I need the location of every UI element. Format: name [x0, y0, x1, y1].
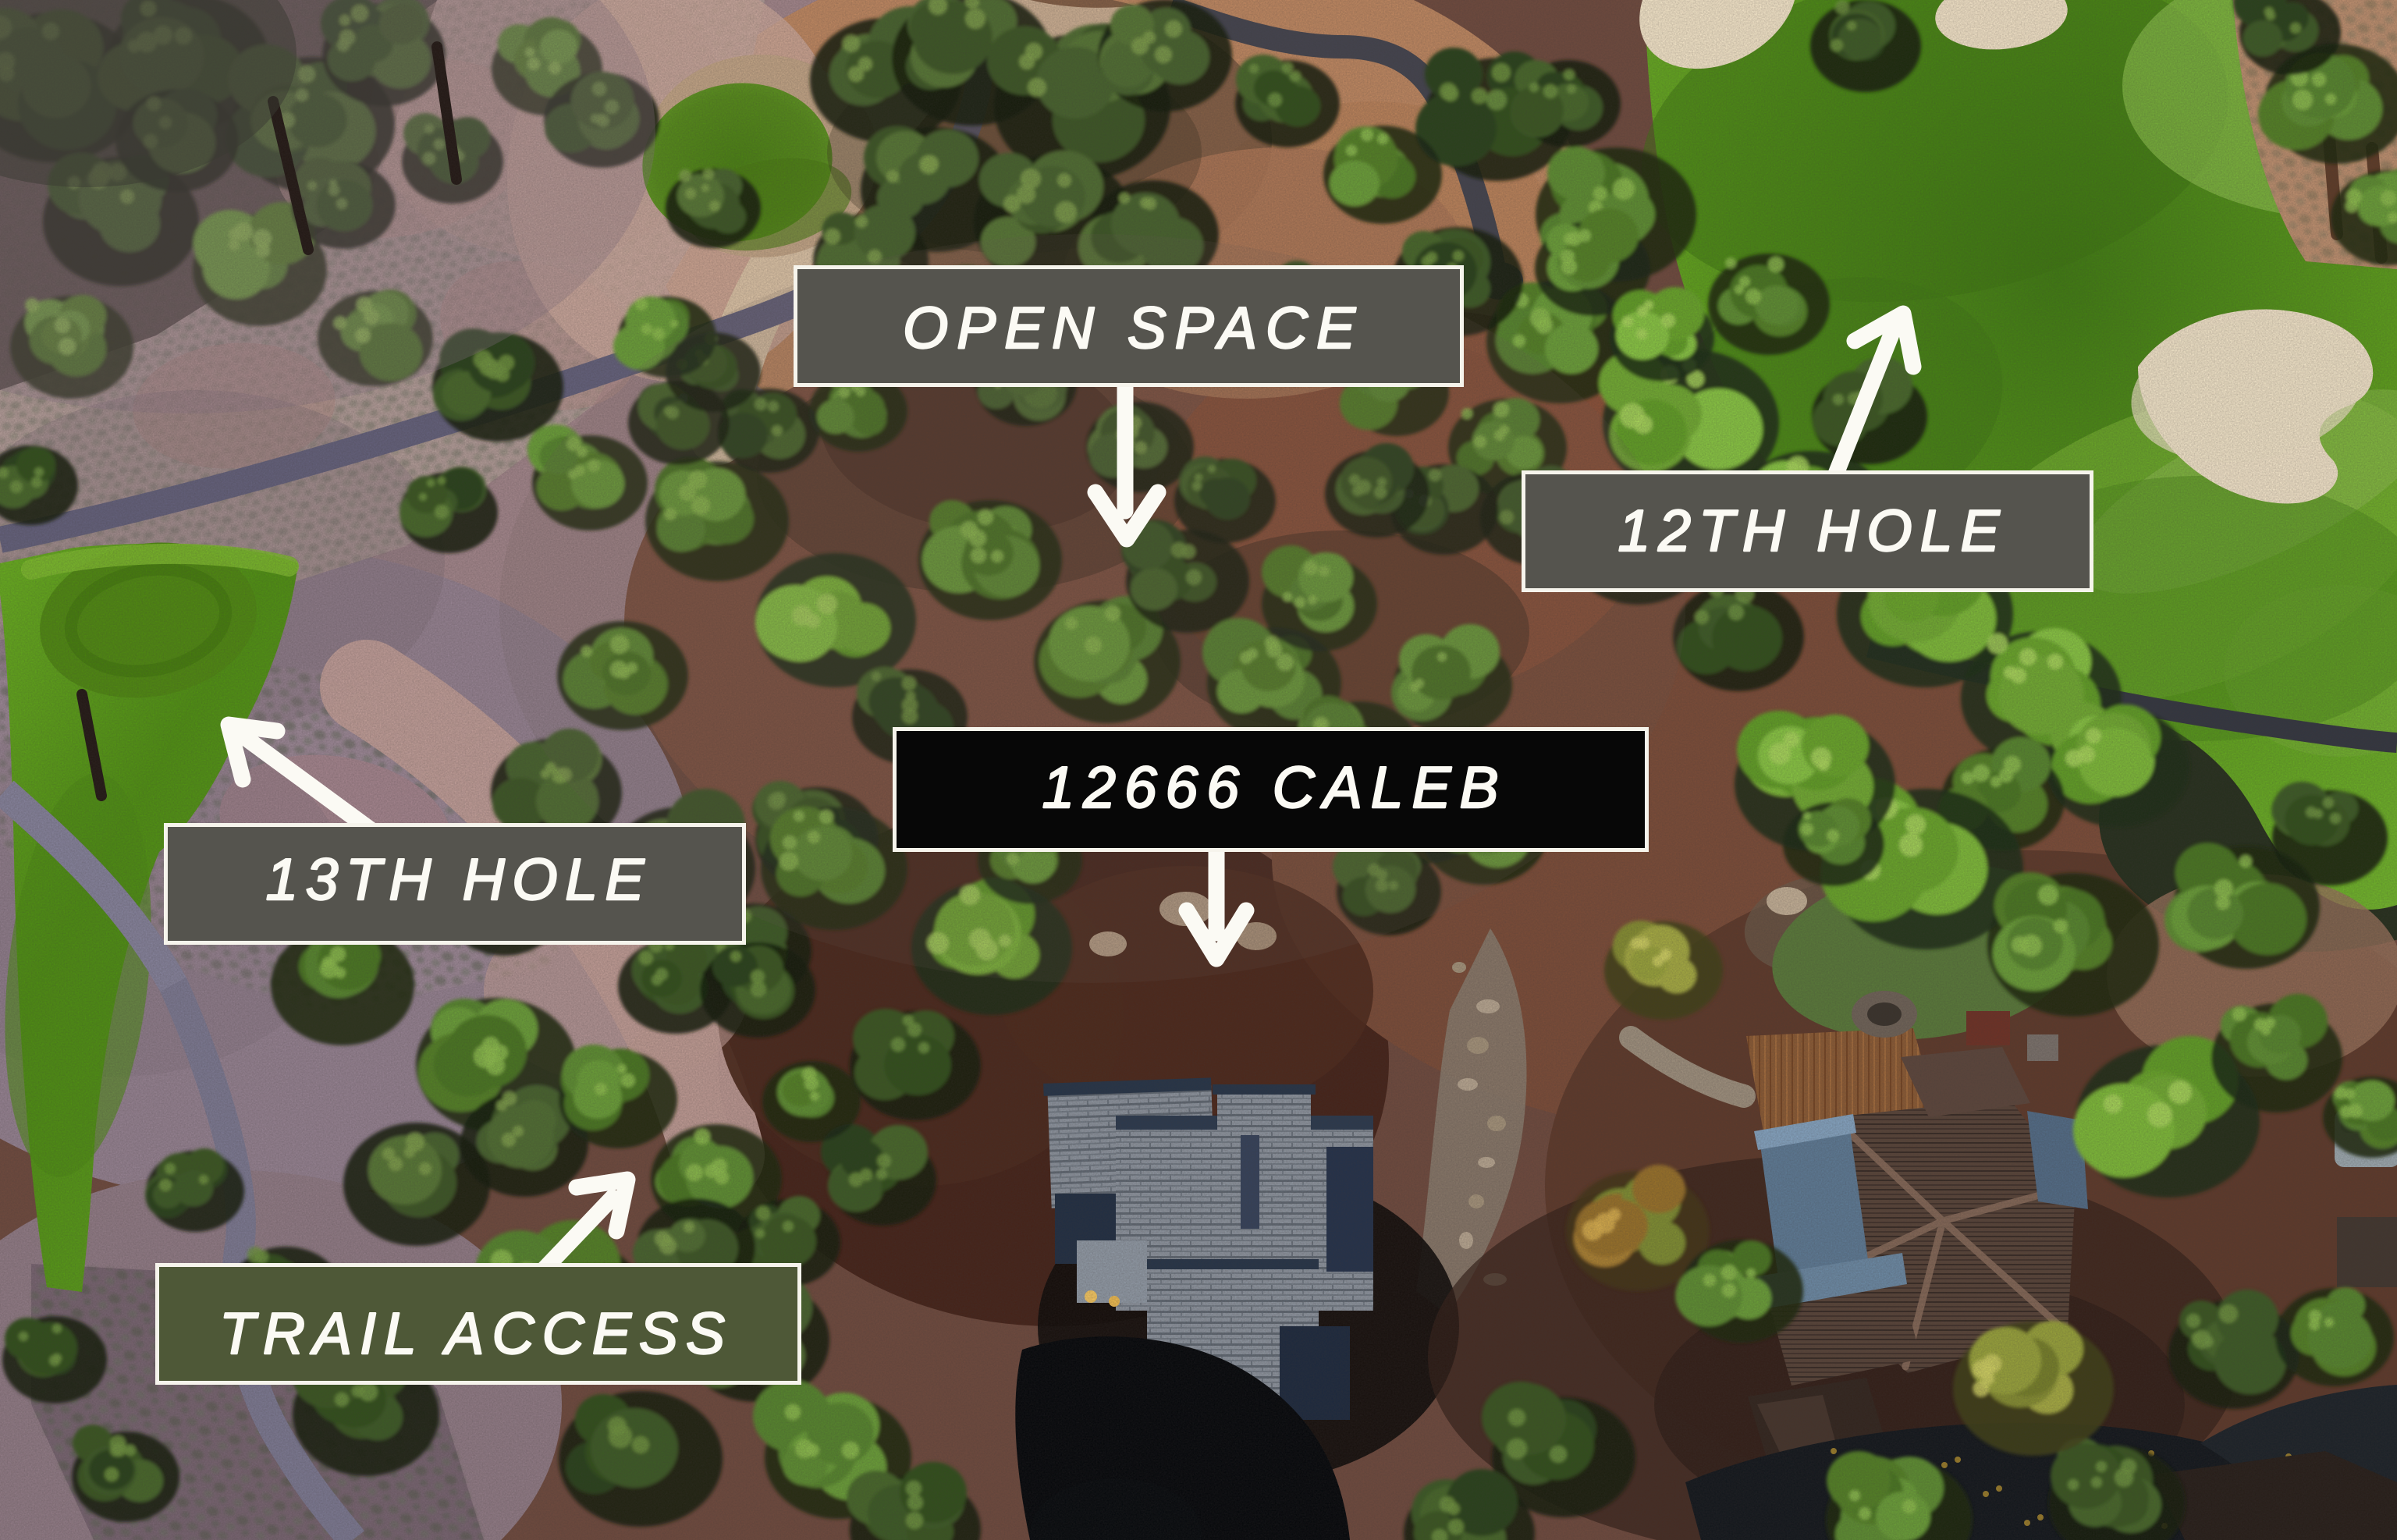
svg-text:OPEN SPACE: OPEN SPACE: [903, 295, 1356, 360]
svg-text:TRAIL ACCESS: TRAIL ACCESS: [219, 1300, 725, 1366]
